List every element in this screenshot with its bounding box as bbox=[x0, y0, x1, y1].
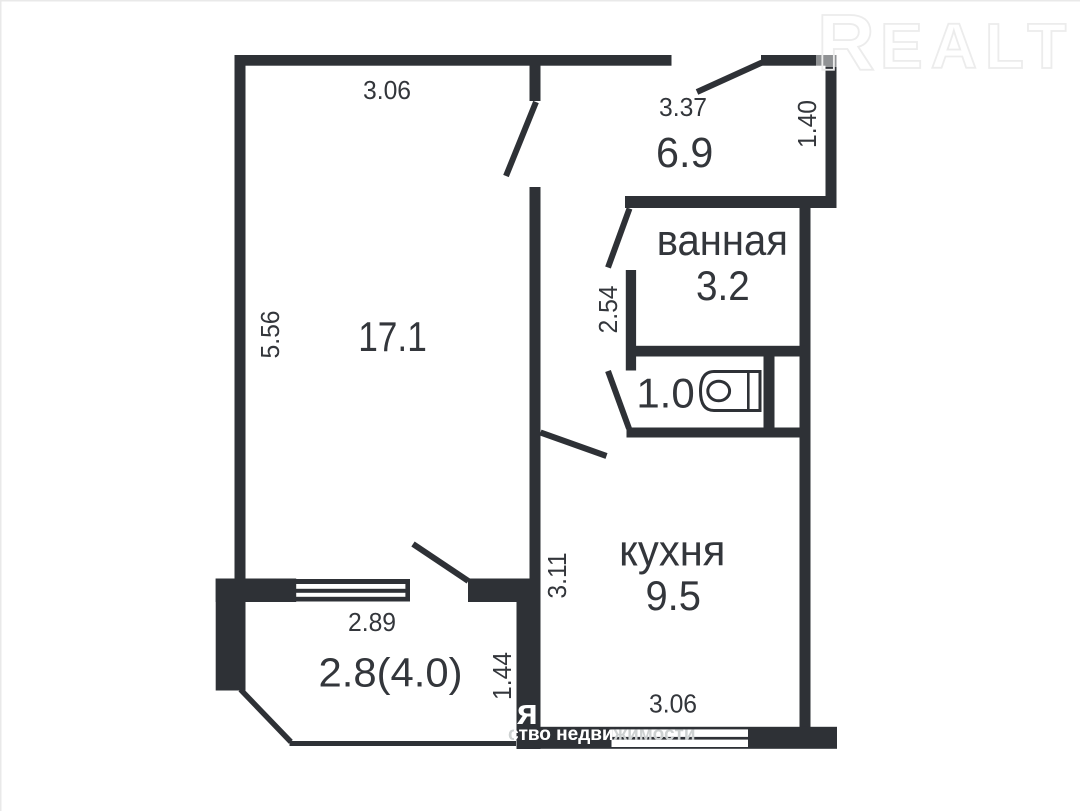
svg-text:3.37: 3.37 bbox=[659, 93, 707, 122]
svg-text:3.2: 3.2 bbox=[696, 261, 750, 309]
svg-text:9.5: 9.5 bbox=[645, 572, 700, 619]
svg-text:2.89: 2.89 bbox=[348, 608, 396, 637]
svg-text:EALT: EALT bbox=[880, 10, 1074, 82]
svg-text:ванная: ванная bbox=[657, 215, 788, 264]
svg-text:1.0: 1.0 bbox=[636, 370, 694, 417]
svg-text:1.40: 1.40 bbox=[793, 100, 822, 148]
svg-text:3.06: 3.06 bbox=[649, 690, 697, 719]
svg-text:3.11: 3.11 bbox=[543, 552, 572, 598]
svg-text:5.56: 5.56 bbox=[256, 310, 285, 358]
svg-text:R: R bbox=[817, 0, 875, 87]
svg-text:2.8(4.0): 2.8(4.0) bbox=[318, 650, 462, 696]
svg-text:кухня: кухня bbox=[619, 526, 725, 575]
svg-text:2.54: 2.54 bbox=[594, 285, 623, 333]
svg-text:17.1: 17.1 bbox=[358, 314, 427, 361]
svg-text:6.9: 6.9 bbox=[656, 128, 713, 176]
svg-text:3.06: 3.06 bbox=[363, 76, 411, 105]
svg-text:1.44: 1.44 bbox=[488, 652, 517, 700]
